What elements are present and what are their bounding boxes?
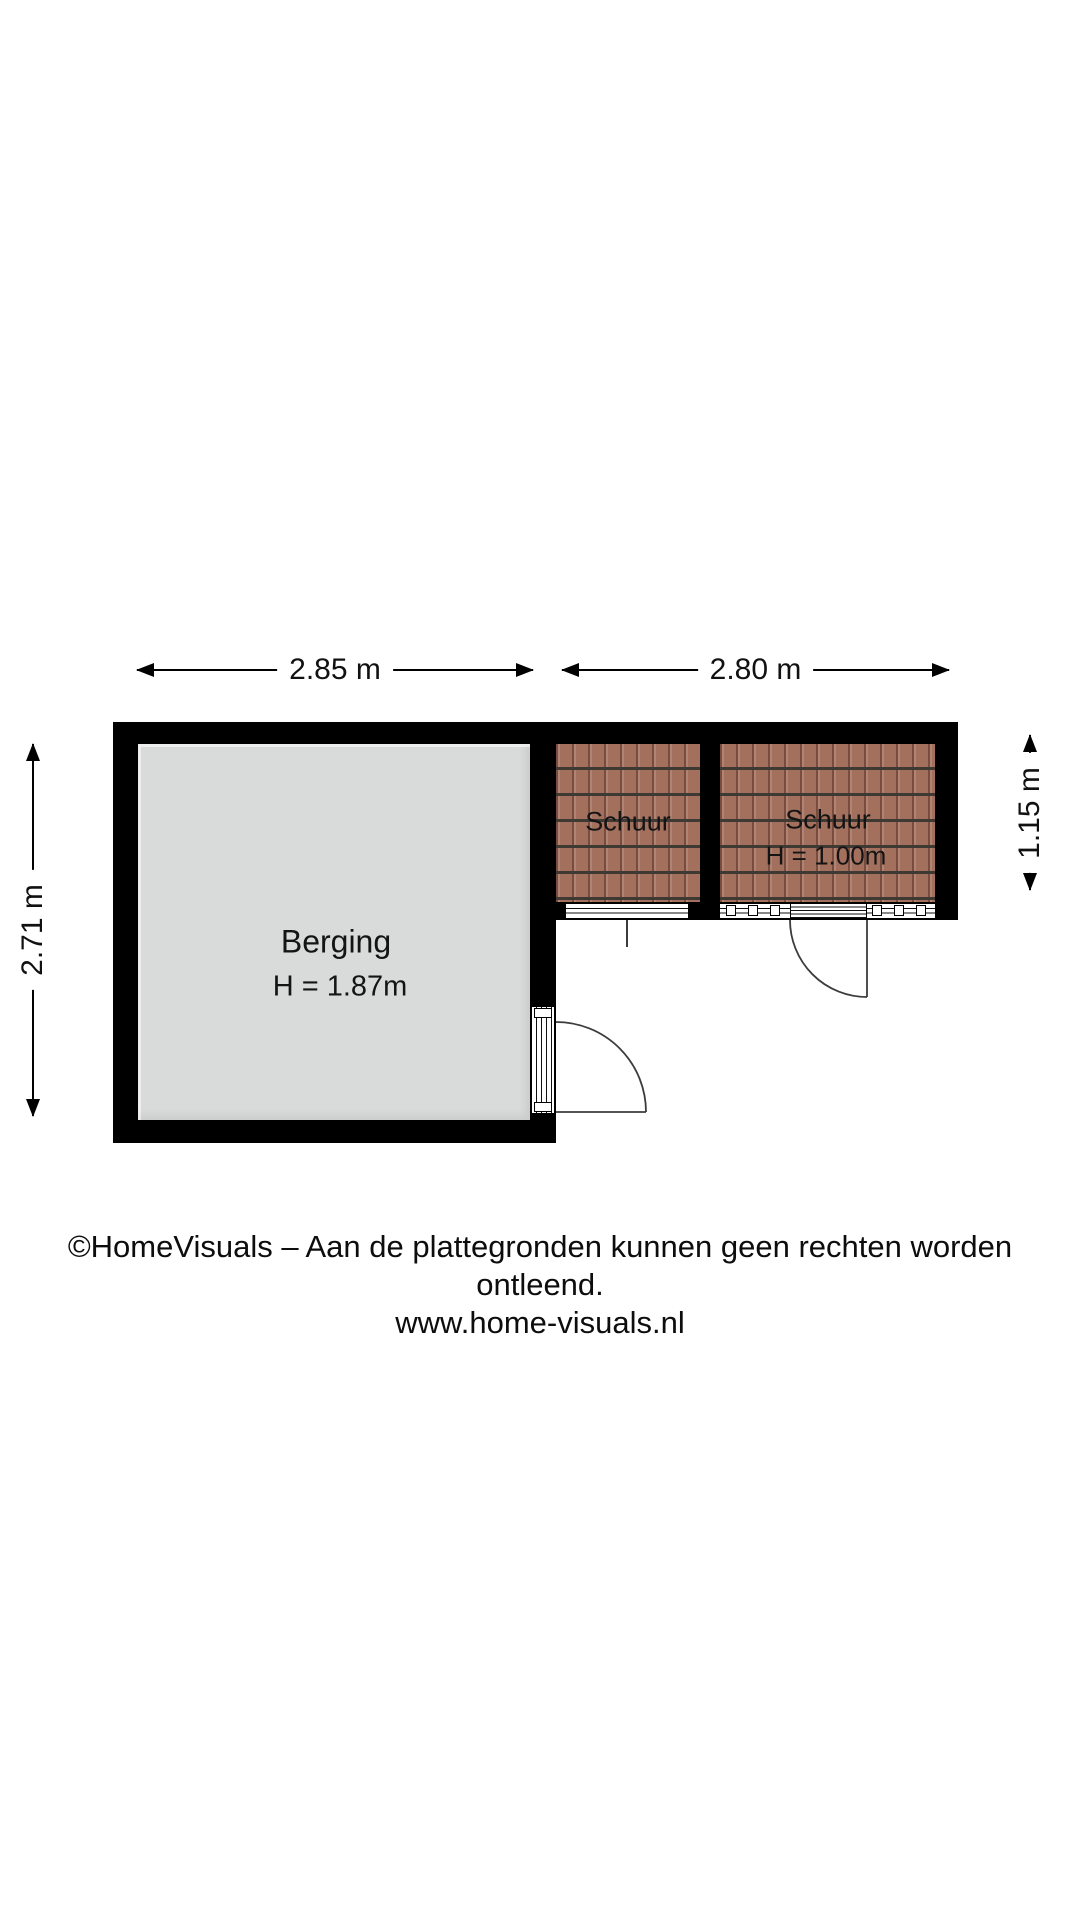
footer-disclaimer: ©HomeVisuals – Aan de plattegronden kunn… [0,1228,1080,1304]
window-band-right [720,902,935,920]
dimension-top-left: 2.85 m [137,655,533,685]
room-height-berging: H = 1.87m [273,971,408,1004]
window-pane [748,905,758,916]
window-band-left [556,902,700,920]
window-pane [894,905,904,916]
window-pane [916,905,926,916]
berging-door-swing-icon [556,1022,646,1112]
arrowhead-left-icon [561,663,579,677]
arrowhead-right-icon [516,663,534,677]
wall-berging-right-stub [530,1115,556,1143]
wall-stub [688,902,700,920]
room-label-berging: Berging [281,924,391,961]
dimension-label: 2.85 m [277,653,393,687]
arrowhead-left-icon [136,663,154,677]
dimension-label: 2.71 m [16,870,50,990]
arrowhead-down-icon [26,1099,40,1117]
footer-url: www.home-visuals.nl [0,1304,1080,1342]
footer: ©HomeVisuals – Aan de plattegronden kunn… [0,1228,1080,1342]
wall-right [935,744,958,920]
dimension-right: 1.15 m [1015,735,1045,890]
arrowhead-up-icon [26,743,40,761]
schuur-door-swing-icon [790,920,867,997]
wall-schuur-divider [700,744,720,920]
dimension-left: 2.71 m [18,744,48,1116]
room-label-schuur-right: Schuur [785,805,871,836]
wall-stub [556,902,566,920]
dimension-label: 1.15 m [1013,753,1047,873]
wall-bottom-berging [113,1120,556,1143]
floorplan-canvas: 2.85 m 2.80 m 2.71 m 1.15 m [0,0,1080,1920]
room-height-schuur-right: H = 1.00m [766,841,887,872]
berging-door-frame [530,1005,556,1115]
window-pane [770,905,780,916]
dimension-top-right: 2.80 m [562,655,949,685]
wall-berging-right [530,722,556,1005]
window-pane [872,905,882,916]
wall-left [113,722,138,1143]
door-panel [790,904,867,918]
arrowhead-up-icon [1023,734,1037,752]
dimension-label: 2.80 m [698,653,814,687]
arrowhead-right-icon [932,663,950,677]
door-jamb [534,1102,552,1112]
arrowhead-down-icon [1023,873,1037,891]
room-label-schuur-left: Schuur [585,807,671,838]
door-jamb [534,1008,552,1018]
window-pane [726,905,736,916]
